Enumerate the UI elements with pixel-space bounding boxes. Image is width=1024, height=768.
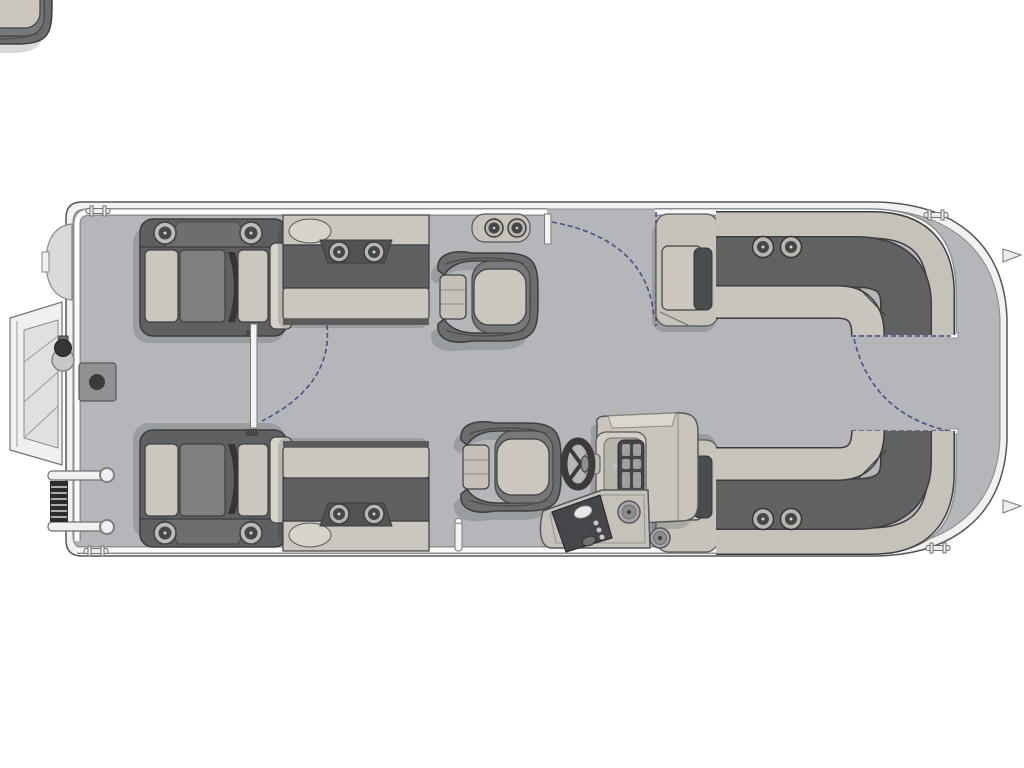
helm-chair xyxy=(454,422,561,521)
ignition-icon xyxy=(613,464,618,469)
deck-plate xyxy=(79,363,116,401)
bow-boarding-platform xyxy=(10,302,62,465)
boat-floorplan-page xyxy=(0,0,1024,768)
boat-floorplan-svg xyxy=(0,0,1024,768)
cup-holder-icon xyxy=(154,222,176,244)
deck-post xyxy=(455,519,462,552)
cup-holder-icon xyxy=(240,222,262,244)
motor-fin-top xyxy=(1003,249,1021,262)
speaker-icon xyxy=(650,528,670,548)
bow-pontoon-nose xyxy=(42,224,72,300)
speaker-icon xyxy=(618,501,640,523)
forward-bench xyxy=(278,215,429,328)
cup-holder-icon xyxy=(781,237,802,258)
motor-fin-bottom xyxy=(1003,500,1021,513)
pedestal-chair xyxy=(0,0,52,54)
cup-holder-icon xyxy=(508,219,526,237)
cup-holder-icon xyxy=(753,237,774,258)
cup-holder-icon xyxy=(485,219,503,237)
cup-holder-icon xyxy=(329,242,349,262)
cupholder-pod xyxy=(472,214,530,242)
forward-bench-mirrored xyxy=(278,438,429,551)
pedestal-chair-bow xyxy=(431,252,538,351)
bow-lounger-mirrored xyxy=(133,423,292,547)
cup-holder-icon xyxy=(364,242,384,262)
stern-l-bench xyxy=(652,214,941,335)
bow-lounger xyxy=(133,219,292,343)
